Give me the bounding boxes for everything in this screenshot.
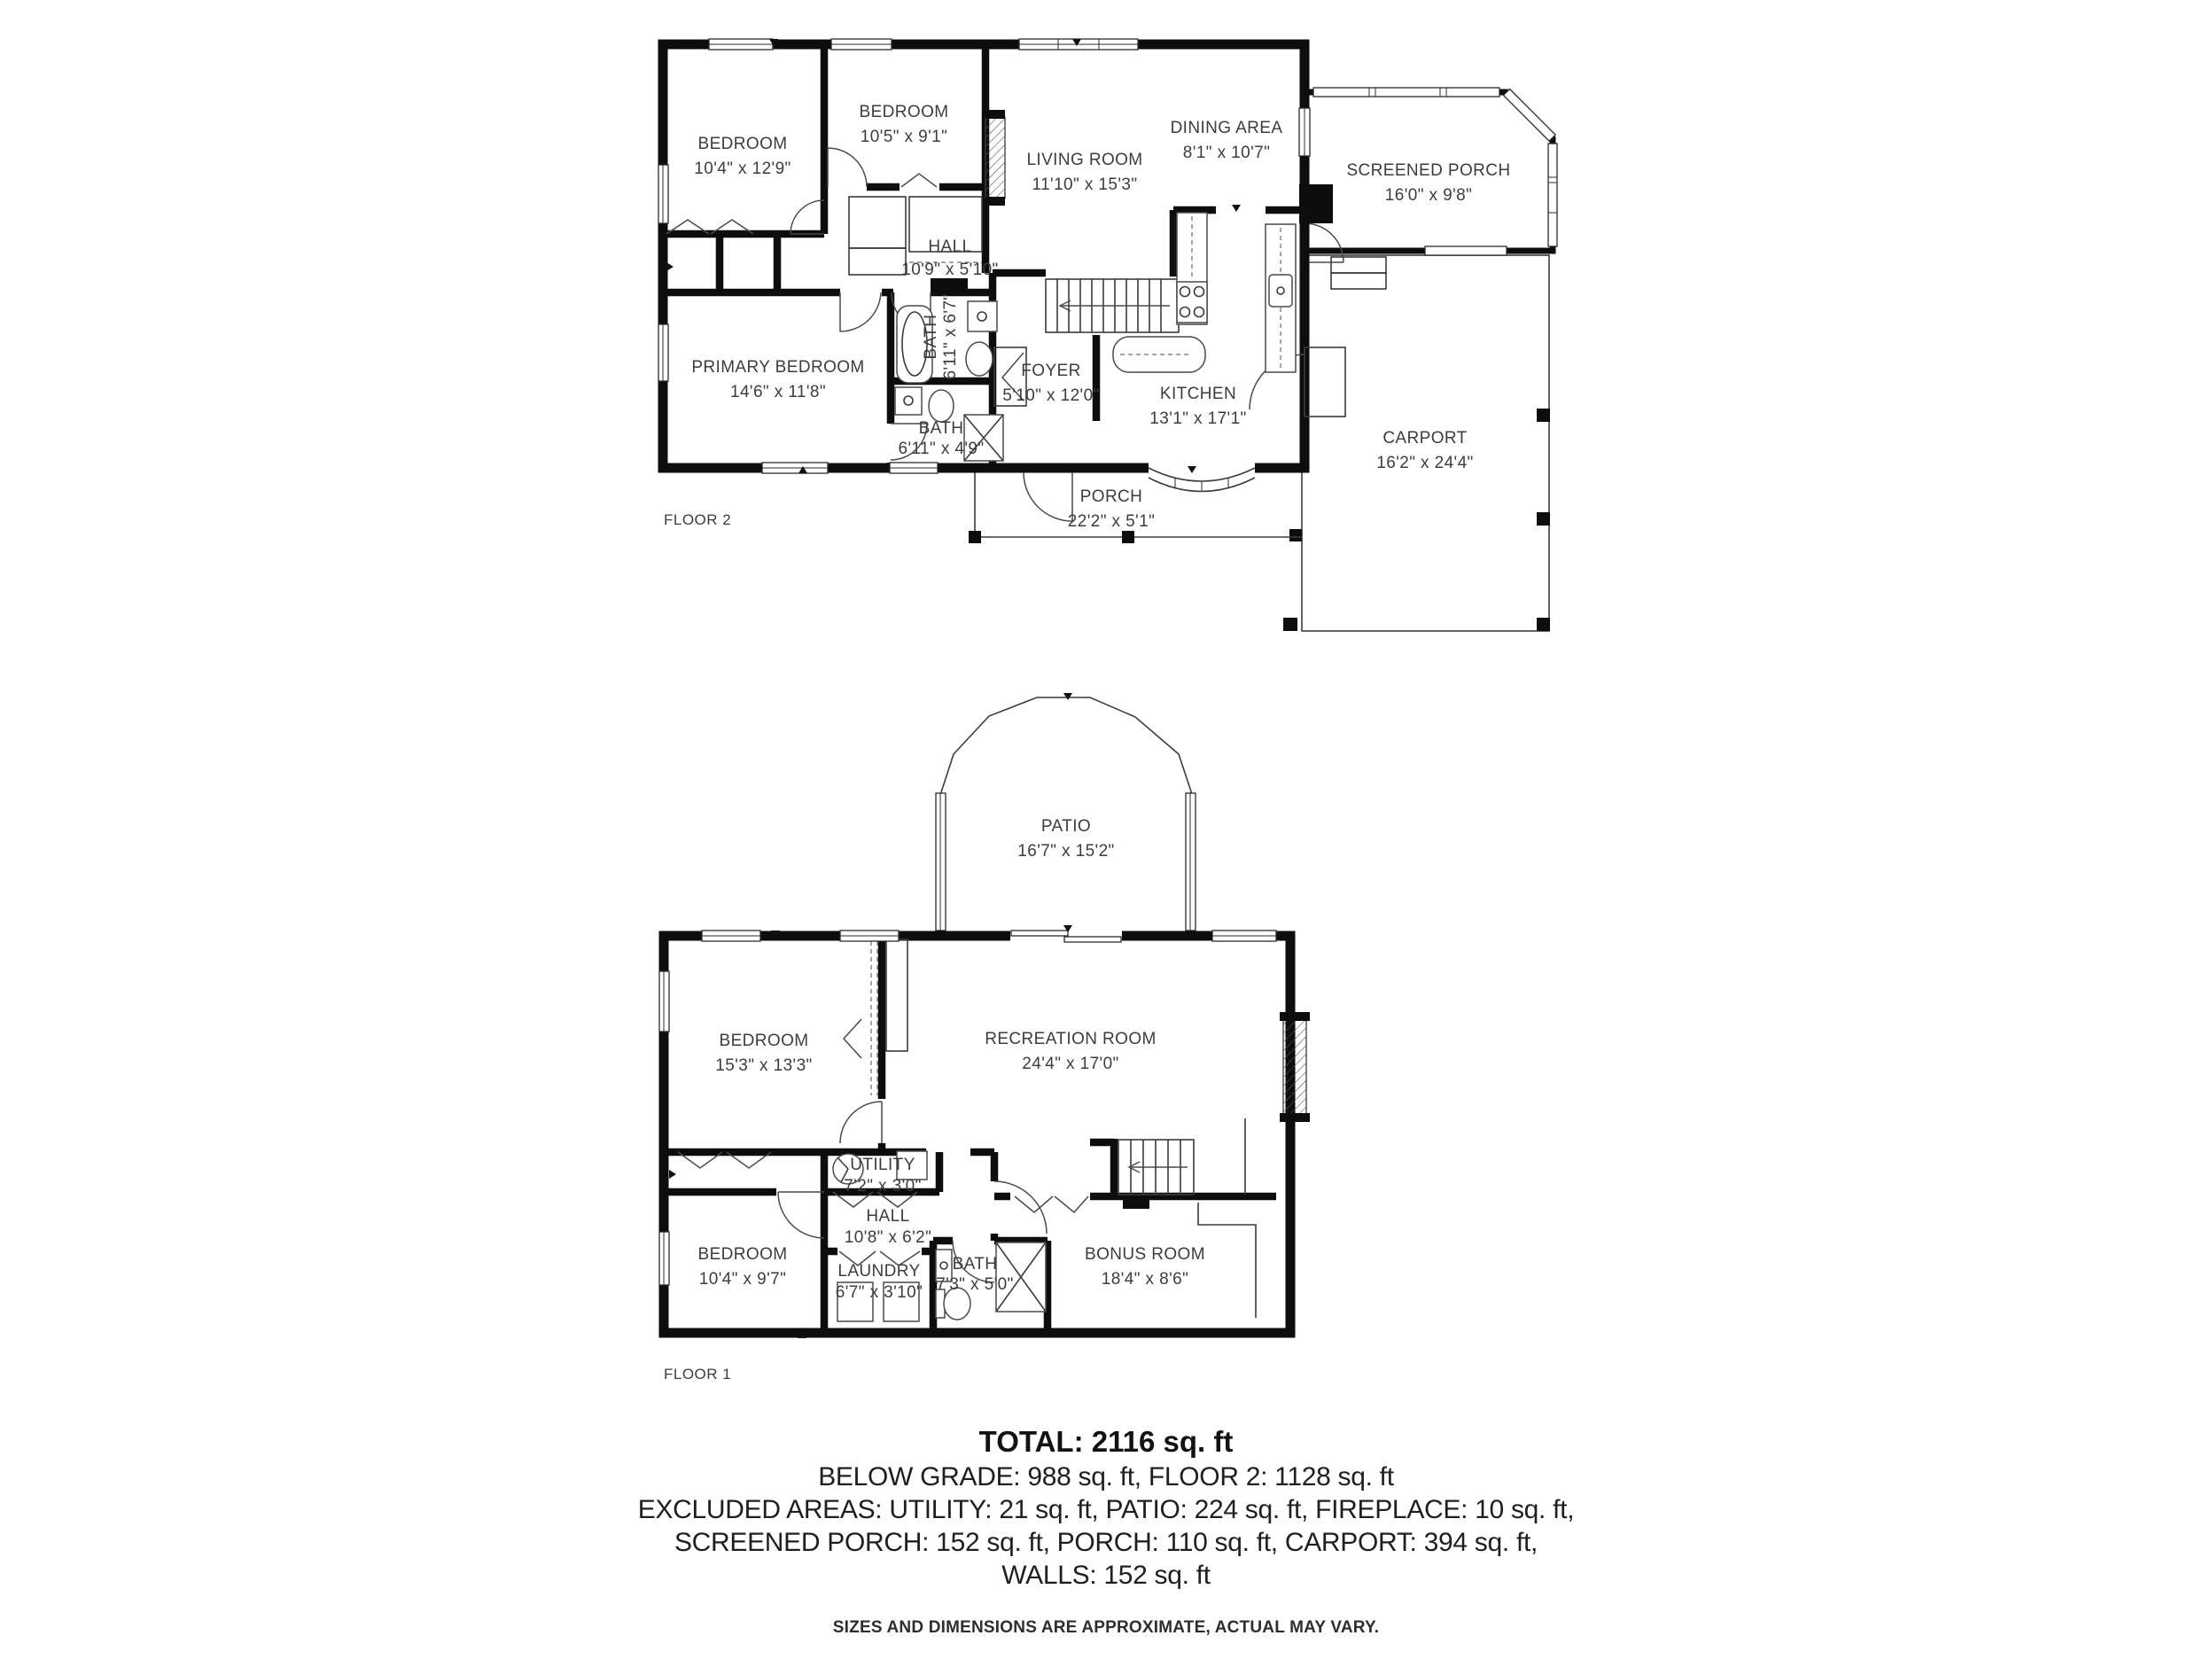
room-label-kitchen: KITCHEN 13'1" x 17'1" (1149, 385, 1246, 428)
area-summary: TOTAL: 2116 sq. ft BELOW GRADE: 988 sq. … (0, 1423, 2212, 1638)
svg-text:BATH: BATH (922, 315, 940, 360)
sliding-door (1011, 931, 1068, 936)
svg-text:10'8" x 6'2": 10'8" x 6'2" (845, 1228, 931, 1247)
svg-text:BEDROOM: BEDROOM (698, 1245, 788, 1264)
room-label-foyer: FOYER 5'10" x 12'0" (1002, 362, 1099, 405)
svg-text:10'4" x 9'7": 10'4" x 9'7" (699, 1270, 786, 1289)
svg-text:16'0" x 9'8": 16'0" x 9'8" (1385, 186, 1472, 205)
svg-text:HALL: HALL (928, 238, 971, 256)
svg-text:10'5" x 9'1": 10'5" x 9'1" (861, 128, 947, 146)
room-label-dining-area: DINING AREA 8'1" x 10'7" (1171, 119, 1283, 162)
svg-text:6'11" x 6'7": 6'11" x 6'7" (941, 293, 960, 379)
summary-line-1: BELOW GRADE: 988 sq. ft, FLOOR 2: 1128 s… (0, 1460, 2212, 1493)
room-label-bedroom-1: BEDROOM 10'4" x 12'9" (694, 135, 791, 178)
svg-text:BEDROOM: BEDROOM (720, 1032, 809, 1050)
floor1-windows (659, 930, 1276, 1285)
svg-text:18'4" x 8'6": 18'4" x 8'6" (1102, 1270, 1188, 1289)
floor1-tag: FLOOR 1 (664, 1366, 731, 1382)
svg-text:BATH: BATH (953, 1255, 998, 1273)
floor2-interior-walls (664, 44, 1305, 468)
bay-window (1149, 462, 1255, 492)
svg-text:13'1" x 17'1": 13'1" x 17'1" (1149, 409, 1246, 428)
svg-text:BATH: BATH (919, 419, 964, 438)
svg-text:HALL: HALL (866, 1207, 909, 1226)
room-label-recreation-room: RECREATION ROOM 24'4" x 17'0" (985, 1030, 1157, 1073)
svg-text:22'2" x 5'1": 22'2" x 5'1" (1068, 512, 1155, 531)
room-label-living-room: LIVING ROOM 11'10" x 15'3" (1026, 151, 1142, 194)
room-label-primary-bedroom: PRIMARY BEDROOM 14'6" x 11'8" (691, 358, 864, 401)
room-label-bedroom-3: BEDROOM 15'3" x 13'3" (715, 1032, 812, 1075)
bonus-room-boundary (1198, 1203, 1256, 1318)
svg-text:UTILITY: UTILITY (850, 1156, 915, 1174)
svg-text:6'7" x 3'10": 6'7" x 3'10" (836, 1283, 923, 1302)
svg-text:KITCHEN: KITCHEN (1160, 385, 1236, 403)
svg-text:6'11" x 4'9": 6'11" x 4'9" (898, 440, 984, 458)
svg-text:7'2" x 3'0": 7'2" x 3'0" (844, 1177, 921, 1196)
svg-text:16'7" x 15'2": 16'7" x 15'2" (1017, 842, 1114, 861)
svg-text:10'9" x 5'10": 10'9" x 5'10" (901, 261, 998, 279)
summary-line-4: WALLS: 152 sq. ft (0, 1559, 2212, 1592)
svg-text:15'3" x 13'3": 15'3" x 13'3" (715, 1056, 812, 1075)
svg-text:CARPORT: CARPORT (1382, 429, 1467, 448)
svg-text:14'6" x 11'8": 14'6" x 11'8" (730, 383, 826, 401)
room-label-hall-floor1: HALL 10'8" x 6'2" (845, 1207, 931, 1247)
svg-text:5'10" x 12'0": 5'10" x 12'0" (1002, 386, 1099, 405)
svg-text:LAUNDRY: LAUNDRY (837, 1262, 920, 1281)
kitchen-peninsula (1113, 337, 1205, 372)
svg-text:BONUS ROOM: BONUS ROOM (1085, 1245, 1205, 1264)
bath1-toilet (966, 342, 993, 376)
room-label-bonus-room: BONUS ROOM 18'4" x 8'6" (1085, 1245, 1205, 1289)
svg-text:DINING AREA: DINING AREA (1171, 119, 1283, 137)
svg-text:7'3" x 5'0": 7'3" x 5'0" (936, 1275, 1013, 1294)
svg-text:PRIMARY BEDROOM: PRIMARY BEDROOM (691, 358, 864, 377)
room-label-bedroom-4: BEDROOM 10'4" x 9'7" (698, 1245, 788, 1289)
svg-text:SCREENED PORCH: SCREENED PORCH (1346, 161, 1510, 180)
floor1-plan: PATIO 16'7" x 15'2" BEDROOM 15'3" x 13'3… (659, 693, 1310, 1382)
stairs-floor2 (1046, 279, 1179, 332)
svg-text:RECREATION ROOM: RECREATION ROOM (985, 1030, 1157, 1048)
svg-text:PATIO: PATIO (1041, 817, 1091, 836)
room-label-screened-porch: SCREENED PORCH 16'0" x 9'8" (1346, 161, 1510, 205)
svg-text:16'2" x 24'4": 16'2" x 24'4" (1376, 454, 1473, 472)
svg-text:FOYER: FOYER (1021, 362, 1080, 380)
floor2-plan: BEDROOM 10'4" x 12'9" BEDROOM 10'5" x 9'… (658, 39, 1557, 631)
fireplace-floor1 (1280, 1012, 1310, 1122)
room-label-porch: PORCH 22'2" x 5'1" (1068, 487, 1155, 531)
summary-line-3: SCREENED PORCH: 152 sq. ft, PORCH: 110 s… (0, 1526, 2212, 1559)
fireplace-floor2 (985, 110, 1005, 206)
bath1-sink (968, 301, 997, 331)
stairs-floor1 (1118, 1118, 1245, 1195)
svg-text:24'4" x 17'0": 24'4" x 17'0" (1022, 1055, 1118, 1073)
porch-outline (969, 472, 1302, 543)
bath2-toilet (929, 390, 954, 422)
svg-text:BEDROOM: BEDROOM (698, 135, 788, 153)
floor1-closets (844, 939, 907, 1095)
floorplan-page: BEDROOM 10'4" x 12'9" BEDROOM 10'5" x 9'… (0, 0, 2212, 1659)
svg-text:11'10" x 15'3": 11'10" x 15'3" (1032, 175, 1138, 194)
svg-text:BEDROOM: BEDROOM (860, 103, 949, 121)
summary-line-2: EXCLUDED AREAS: UTILITY: 21 sq. ft, PATI… (0, 1493, 2212, 1526)
floorplan-drawing: BEDROOM 10'4" x 12'9" BEDROOM 10'5" x 9'… (0, 0, 2212, 1409)
room-label-carport: CARPORT 16'2" x 24'4" (1376, 429, 1473, 472)
kitchen-sink (1269, 275, 1292, 307)
svg-text:8'1" x 10'7": 8'1" x 10'7" (1183, 144, 1270, 162)
svg-text:10'4" x 12'9": 10'4" x 12'9" (694, 160, 791, 178)
svg-text:LIVING ROOM: LIVING ROOM (1026, 151, 1142, 169)
total-area: TOTAL: 2116 sq. ft (0, 1423, 2212, 1460)
bath2-sink (895, 387, 922, 415)
room-label-patio: PATIO 16'7" x 15'2" (1017, 817, 1114, 861)
patio-outline (936, 697, 1196, 932)
room-label-bedroom-2: BEDROOM 10'5" x 9'1" (860, 103, 949, 146)
floor2-tag: FLOOR 2 (664, 511, 731, 528)
kitchen-fixtures (1113, 213, 1296, 372)
svg-text:PORCH: PORCH (1080, 487, 1143, 506)
disclaimer-text: SIZES AND DIMENSIONS ARE APPROXIMATE, AC… (0, 1618, 2212, 1638)
